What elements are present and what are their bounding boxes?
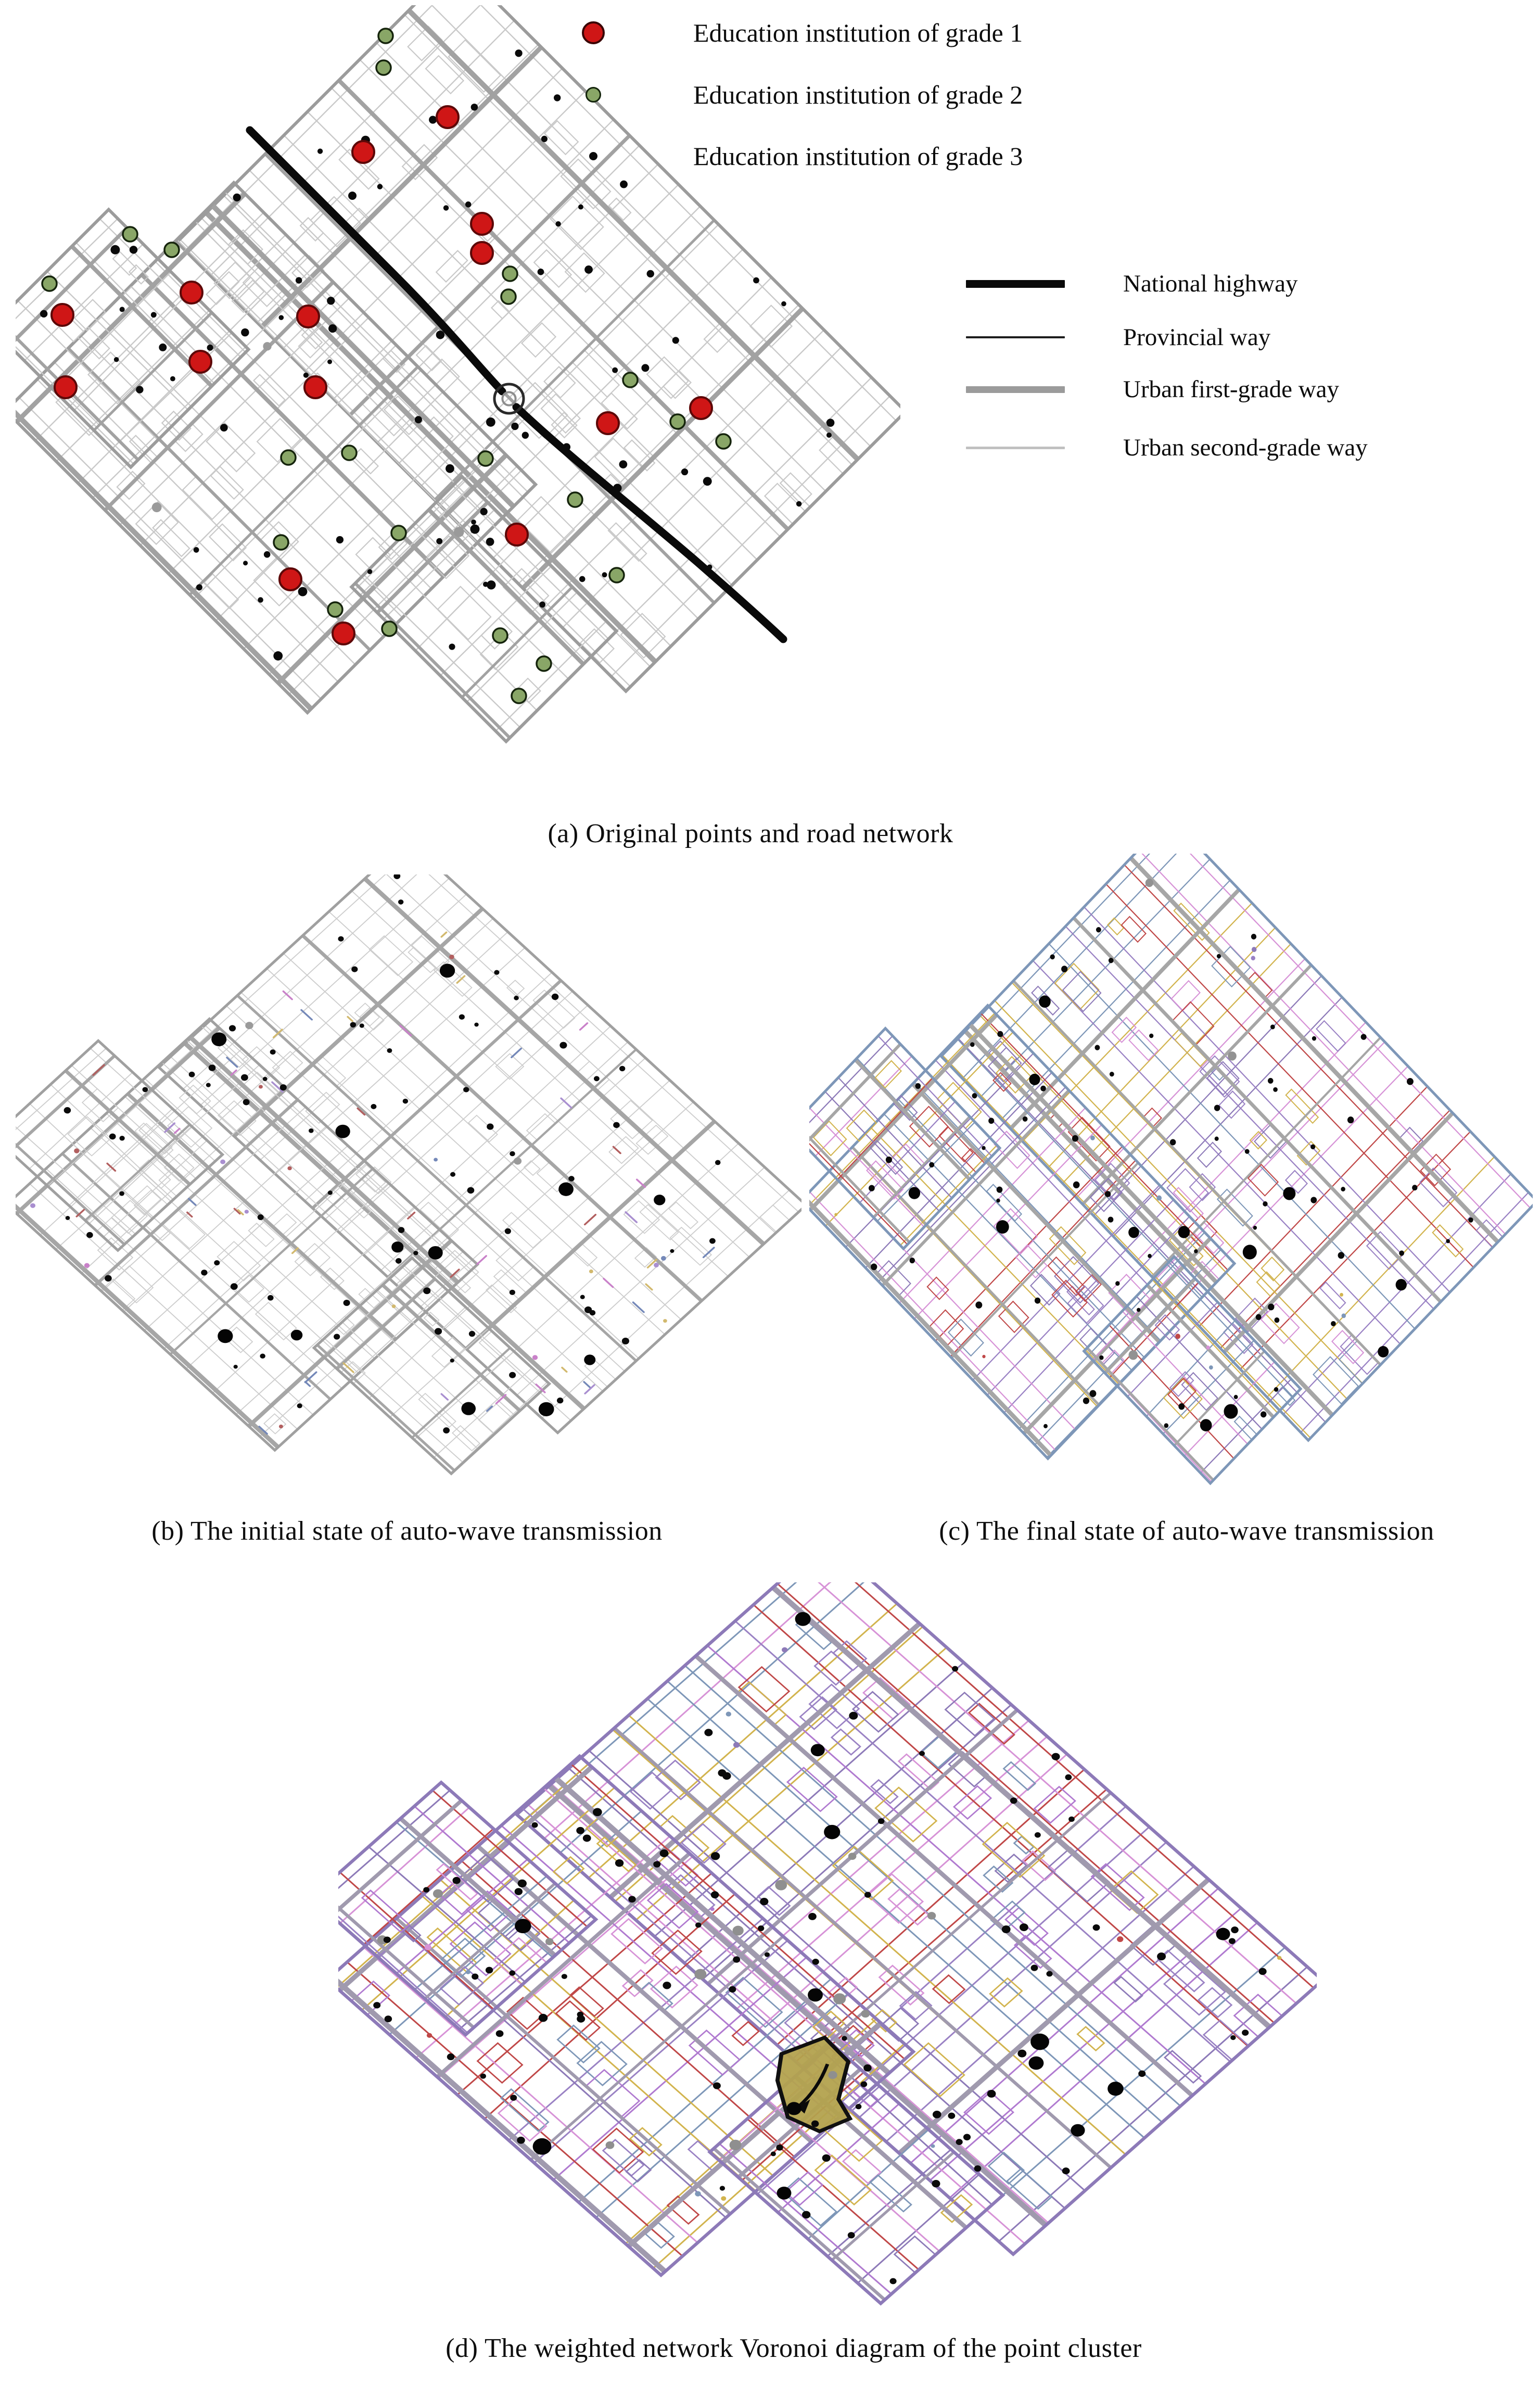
autowave-ticks-layer (77, 932, 714, 1433)
caption-c: (c) The final state of auto-wave transmi… (939, 1516, 1434, 1546)
roads-layer (338, 1582, 1317, 2318)
roads-layer (809, 854, 1533, 1491)
roads-layer (16, 874, 801, 1489)
point-legend-item: Education institution of grade 2 (569, 71, 1023, 119)
map-panel-initial-autowave (16, 874, 801, 1489)
point-legend-label: Education institution of grade 2 (693, 80, 1023, 110)
caption-b: (b) The initial state of auto-wave trans… (151, 1516, 662, 1546)
road-line-sample-icon (966, 386, 1065, 393)
point-legend-item: Education institution of grade 1 (569, 9, 1023, 57)
map-panel-final-autowave (809, 854, 1533, 1499)
road-line-sample-icon (966, 280, 1065, 288)
grade-2-marker-icon (586, 87, 601, 103)
road-line-sample-icon (966, 447, 1065, 449)
road-legend-item: Provincial way (966, 313, 1270, 361)
road-legend-item: National highway (966, 260, 1297, 308)
points-layer (30, 874, 721, 1433)
road-legend-label: Urban second-grade way (1123, 434, 1368, 462)
caption-d: (d) The weighted network Voronoi diagram… (446, 2333, 1141, 2364)
road-legend-item: Urban second-grade way (966, 424, 1368, 472)
road-line-sample-icon (966, 336, 1065, 338)
grade-1-marker-icon (582, 21, 605, 44)
point-legend-label: Education institution of grade 3 (693, 141, 1023, 171)
figure-canvas: Education institution of grade 1Educatio… (0, 0, 1540, 2385)
road-legend-label: Urban first-grade way (1123, 375, 1339, 403)
grade-3-marker-icon (589, 152, 597, 160)
road-legend-label: Provincial way (1123, 323, 1270, 351)
caption-a: (a) Original points and road network (548, 818, 953, 849)
road-legend-label: National highway (1123, 270, 1297, 298)
map-panel-voronoi (338, 1582, 1317, 2321)
point-legend-item: Education institution of grade 3 (569, 132, 1023, 180)
point-legend-label: Education institution of grade 1 (693, 18, 1023, 48)
voronoi-highlight-region (778, 2038, 850, 2132)
road-legend-item: Urban first-grade way (966, 365, 1339, 413)
